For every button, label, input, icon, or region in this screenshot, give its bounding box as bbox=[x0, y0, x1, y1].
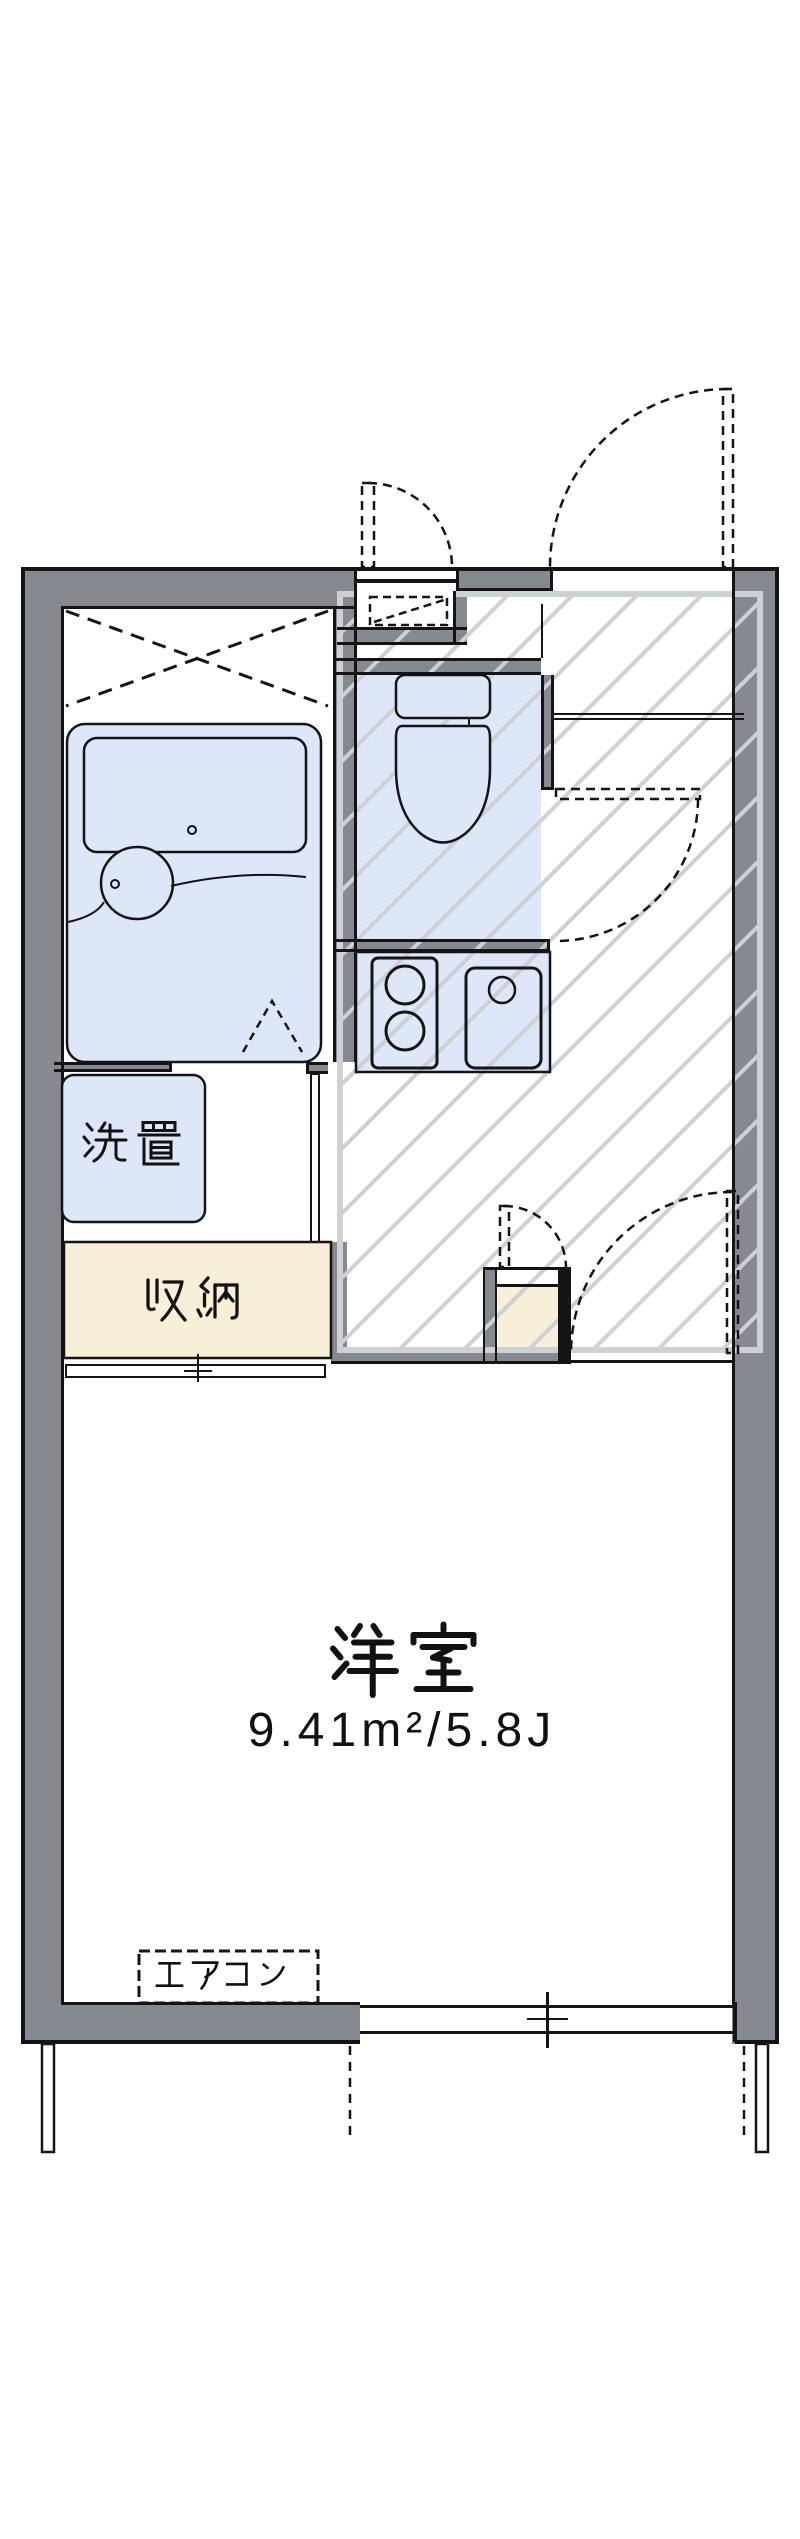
svg-text:9.41m²/5.8J: 9.41m²/5.8J bbox=[248, 1704, 556, 1757]
